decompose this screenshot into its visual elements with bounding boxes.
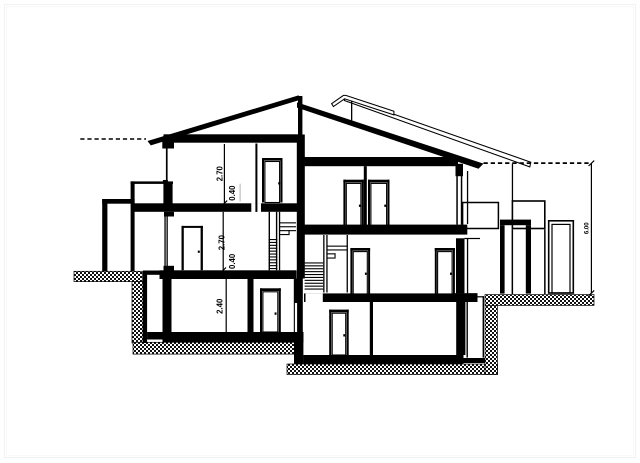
svg-text:0.40: 0.40 — [228, 185, 237, 201]
svg-text:2.70: 2.70 — [216, 165, 225, 181]
svg-text:0.40: 0.40 — [228, 253, 237, 269]
svg-text:2.70: 2.70 — [217, 234, 226, 250]
svg-text:2.40: 2.40 — [216, 298, 225, 314]
svg-text:6.00: 6.00 — [584, 222, 590, 234]
